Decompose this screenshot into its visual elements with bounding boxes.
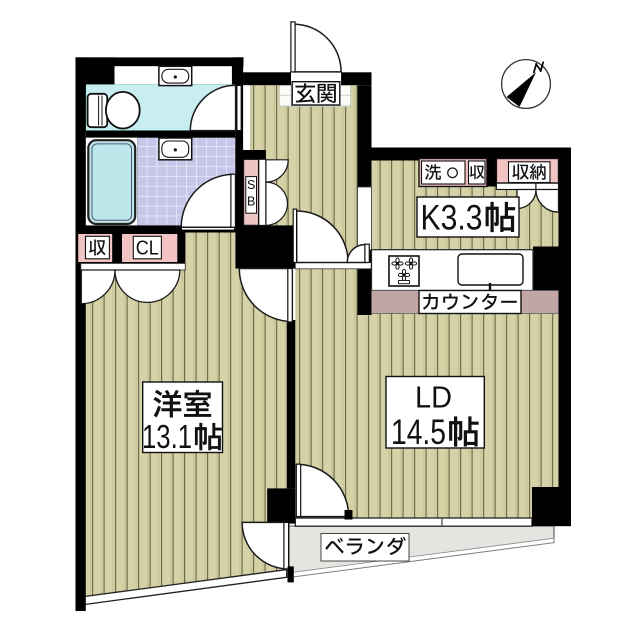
svg-text:14.5: 14.5 (391, 413, 446, 452)
svg-text:LD: LD (415, 380, 452, 415)
svg-text:B: B (247, 195, 255, 209)
svg-text:K3.3: K3.3 (421, 199, 483, 238)
svg-text:CL: CL (136, 238, 159, 260)
svg-text:13.1: 13.1 (142, 418, 192, 455)
svg-text:S: S (247, 178, 255, 192)
